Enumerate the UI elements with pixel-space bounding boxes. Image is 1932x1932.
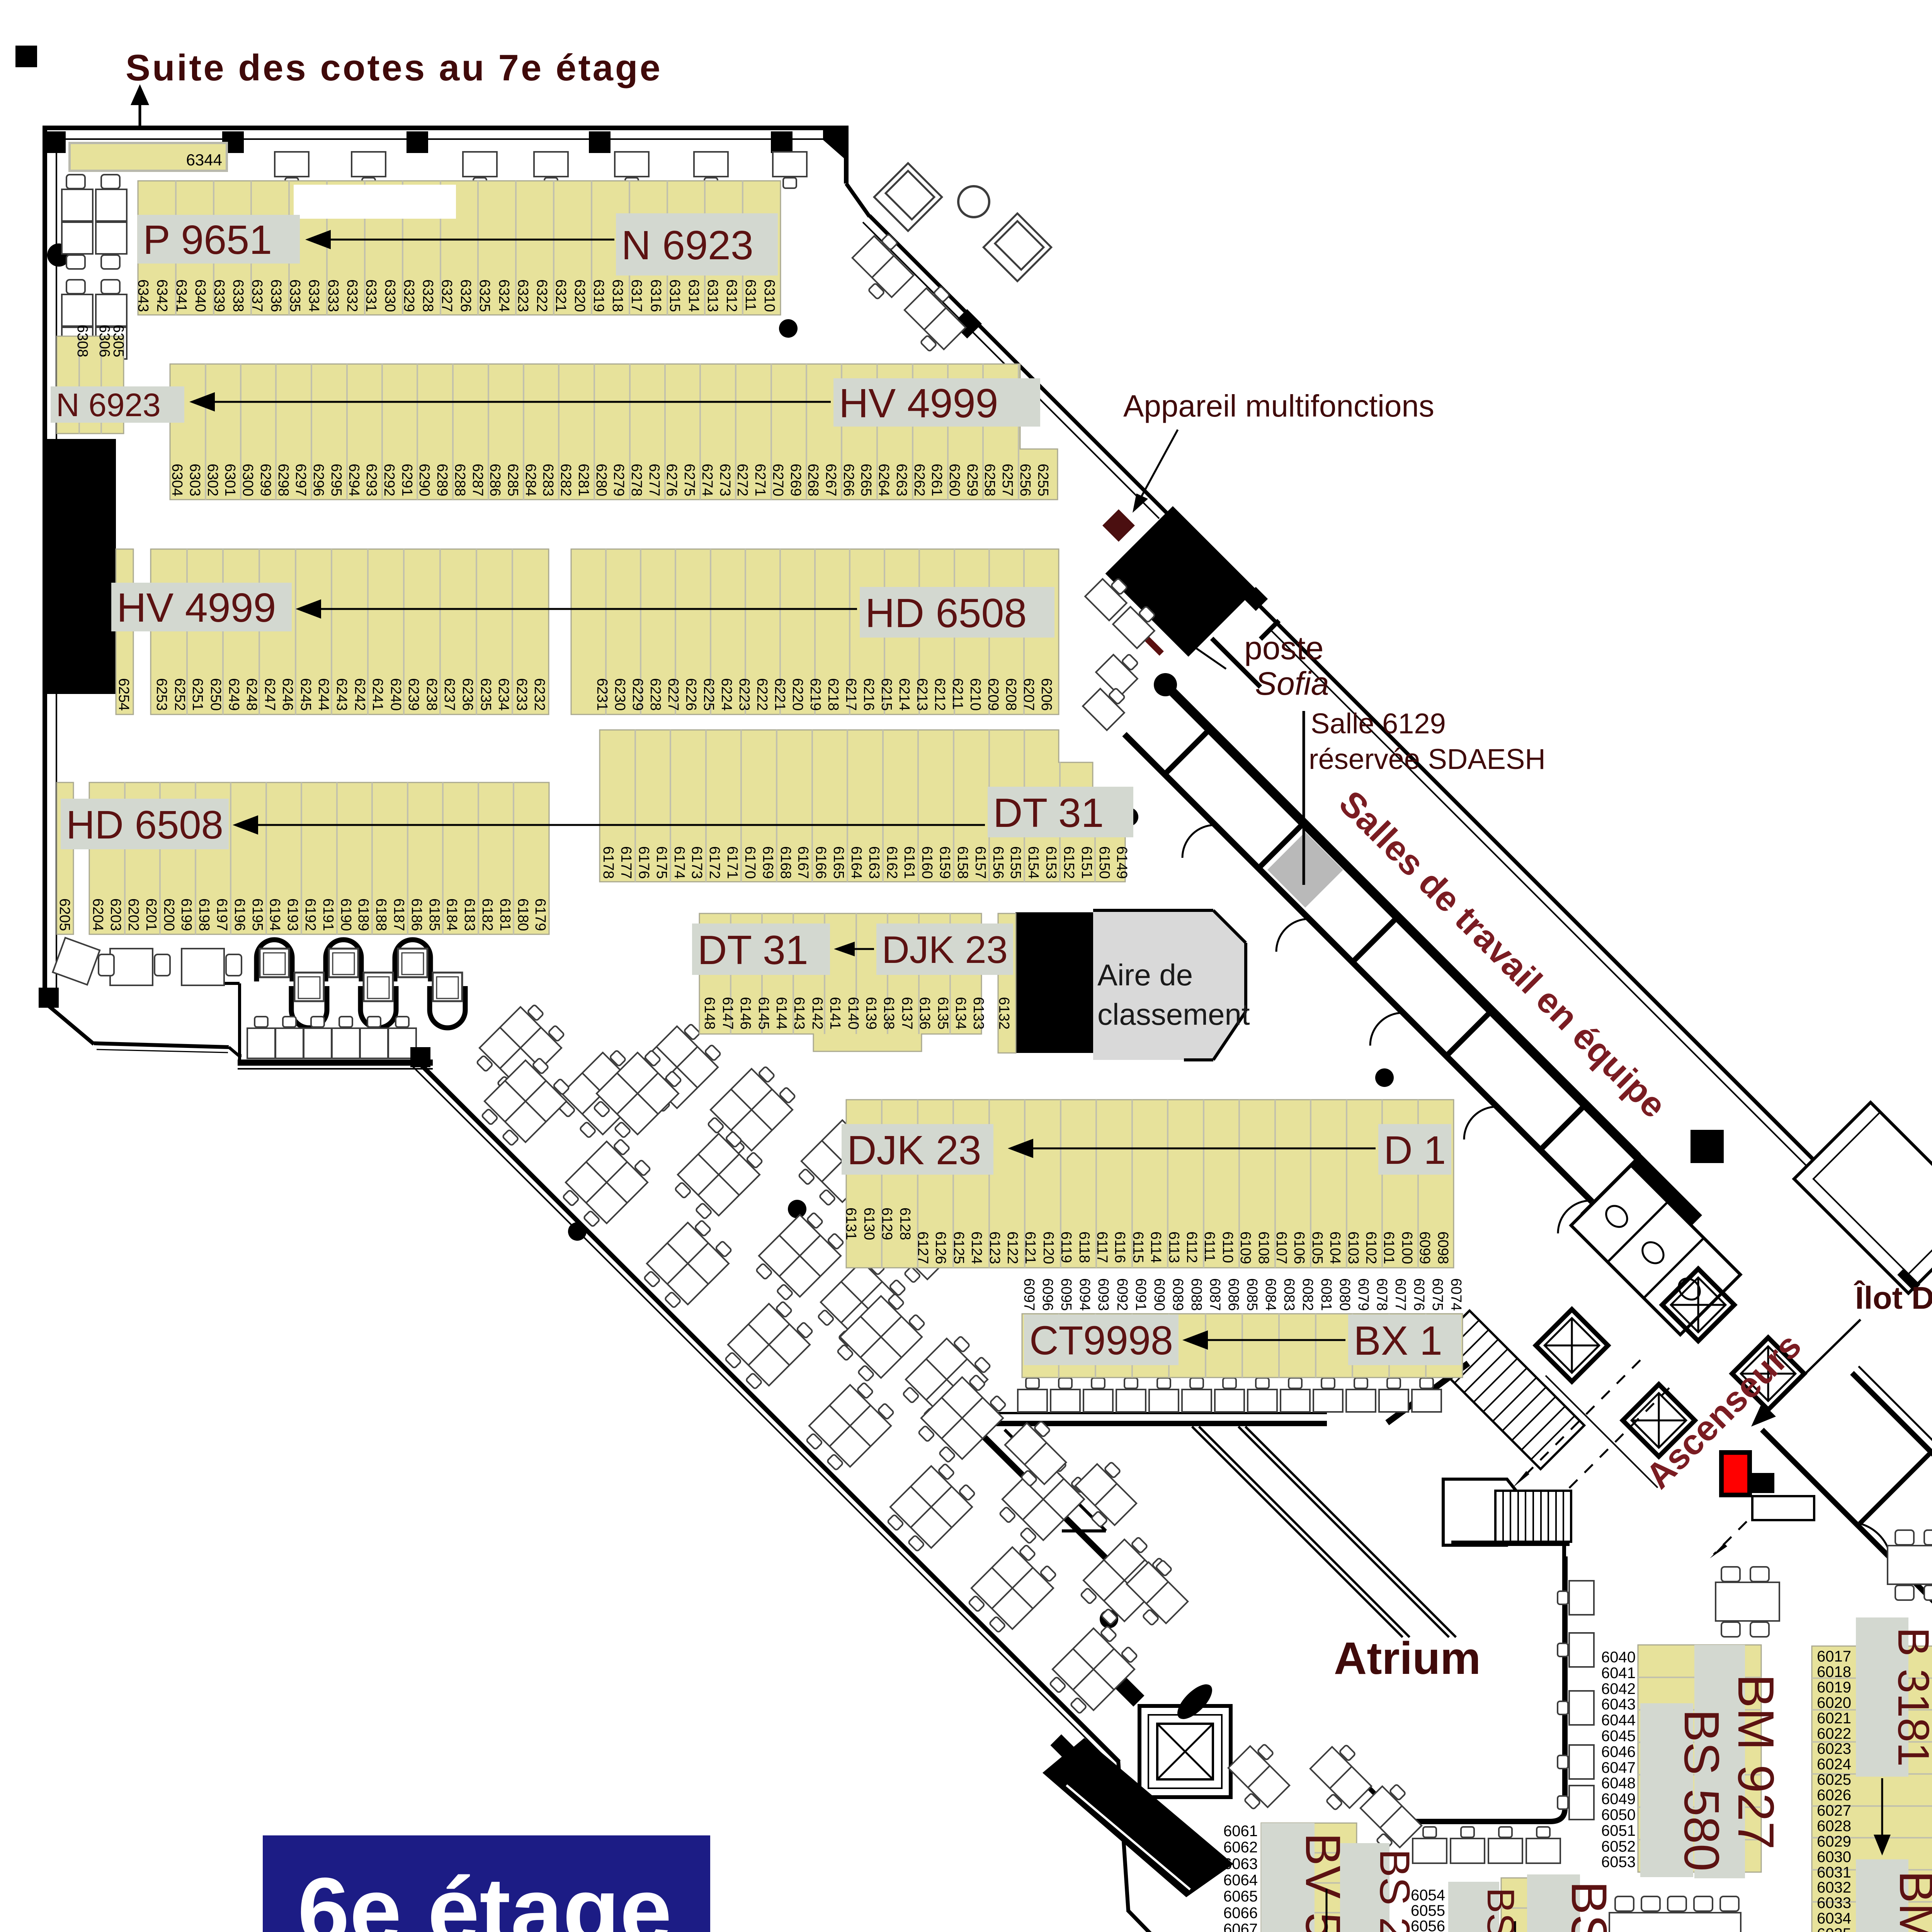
svg-text:HD 6508: HD 6508 [865, 590, 1027, 636]
svg-text:6075: 6075 [1429, 1278, 1446, 1311]
svg-text:6192: 6192 [302, 898, 318, 931]
svg-text:6047: 6047 [1601, 1759, 1636, 1776]
svg-text:6297: 6297 [293, 464, 309, 497]
svg-text:6170: 6170 [742, 846, 758, 879]
svg-text:6299: 6299 [257, 464, 274, 497]
svg-text:6156: 6156 [990, 846, 1006, 879]
svg-text:6243: 6243 [333, 678, 350, 711]
svg-text:6023: 6023 [1817, 1740, 1851, 1757]
svg-text:6055: 6055 [1411, 1902, 1445, 1919]
svg-text:6121: 6121 [1022, 1231, 1038, 1264]
svg-text:6114: 6114 [1148, 1231, 1164, 1263]
svg-text:6312: 6312 [723, 279, 740, 312]
svg-text:6316: 6316 [648, 279, 664, 312]
svg-text:Atrium: Atrium [1334, 1633, 1481, 1684]
svg-text:6026: 6026 [1817, 1787, 1851, 1804]
svg-text:BS 580: BS 580 [1674, 1709, 1729, 1871]
svg-text:6291: 6291 [399, 464, 415, 497]
svg-text:6183: 6183 [461, 898, 478, 931]
svg-text:6197: 6197 [214, 898, 230, 931]
svg-text:6079: 6079 [1355, 1278, 1371, 1311]
svg-text:6232: 6232 [531, 678, 548, 711]
svg-text:6089: 6089 [1170, 1278, 1186, 1311]
svg-text:6201: 6201 [143, 898, 159, 931]
svg-text:6259: 6259 [964, 464, 980, 497]
svg-text:6216: 6216 [861, 678, 877, 711]
svg-text:6296: 6296 [310, 464, 327, 497]
svg-text:6194: 6194 [267, 898, 283, 931]
svg-text:6041: 6041 [1601, 1665, 1636, 1682]
svg-text:6031: 6031 [1817, 1864, 1851, 1881]
svg-text:6262: 6262 [911, 464, 927, 497]
svg-text:6295: 6295 [328, 464, 344, 497]
svg-text:6292: 6292 [381, 464, 397, 497]
svg-text:6106: 6106 [1291, 1231, 1307, 1264]
svg-text:6104: 6104 [1327, 1231, 1343, 1264]
svg-text:6087: 6087 [1207, 1278, 1223, 1311]
svg-text:6120: 6120 [1040, 1231, 1056, 1264]
svg-text:6317: 6317 [628, 279, 645, 312]
svg-text:6255: 6255 [1035, 464, 1051, 497]
svg-text:6145: 6145 [755, 997, 772, 1030]
svg-text:6333: 6333 [325, 279, 341, 312]
svg-text:6338: 6338 [230, 279, 246, 312]
svg-text:6335: 6335 [287, 279, 303, 312]
svg-text:6085: 6085 [1244, 1278, 1260, 1311]
svg-text:6224: 6224 [718, 678, 735, 711]
svg-text:6017: 6017 [1817, 1648, 1851, 1665]
svg-text:6280: 6280 [593, 464, 609, 497]
svg-text:6163: 6163 [866, 846, 882, 879]
svg-text:6062: 6062 [1223, 1839, 1258, 1856]
svg-text:6022: 6022 [1817, 1725, 1851, 1742]
svg-text:6321: 6321 [553, 279, 569, 312]
svg-text:6274: 6274 [699, 464, 715, 497]
svg-text:6252: 6252 [172, 678, 188, 711]
svg-text:6126: 6126 [932, 1231, 949, 1264]
svg-text:poste: poste [1244, 630, 1324, 666]
svg-text:6067: 6067 [1223, 1921, 1258, 1932]
svg-text:6313: 6313 [704, 279, 721, 312]
svg-text:6043: 6043 [1601, 1696, 1636, 1713]
svg-text:6155: 6155 [1007, 846, 1024, 879]
svg-text:6339: 6339 [211, 279, 227, 312]
svg-text:DJK 23: DJK 23 [847, 1128, 981, 1173]
svg-text:6122: 6122 [1004, 1231, 1020, 1264]
svg-text:6191: 6191 [320, 898, 336, 931]
svg-text:6116: 6116 [1112, 1231, 1128, 1263]
svg-text:6113: 6113 [1166, 1231, 1182, 1263]
svg-text:6181: 6181 [497, 898, 513, 931]
svg-text:6315: 6315 [667, 279, 683, 312]
svg-text:6083: 6083 [1281, 1278, 1297, 1311]
svg-text:6214: 6214 [896, 678, 912, 711]
svg-text:6094: 6094 [1077, 1278, 1093, 1311]
svg-text:6134: 6134 [952, 997, 969, 1030]
svg-text:6130: 6130 [861, 1207, 877, 1240]
svg-text:6150: 6150 [1096, 846, 1112, 879]
svg-text:6212: 6212 [932, 678, 948, 711]
svg-text:6110: 6110 [1219, 1231, 1236, 1263]
svg-text:6174: 6174 [671, 846, 687, 879]
svg-text:6290: 6290 [416, 464, 432, 497]
svg-text:6226: 6226 [683, 678, 699, 711]
svg-text:6024: 6024 [1817, 1756, 1851, 1773]
svg-text:6324: 6324 [496, 279, 512, 312]
svg-text:6133: 6133 [970, 997, 986, 1030]
svg-text:6020: 6020 [1817, 1694, 1851, 1711]
svg-text:BS 580: BS 580 [1561, 1881, 1617, 1932]
svg-text:6164: 6164 [848, 846, 864, 879]
svg-text:6246: 6246 [279, 678, 296, 711]
svg-text:6235: 6235 [478, 678, 494, 711]
svg-text:6322: 6322 [534, 279, 550, 312]
svg-text:6091: 6091 [1133, 1278, 1149, 1311]
svg-text:Aire de: Aire de [1097, 958, 1193, 992]
svg-text:6048: 6048 [1601, 1775, 1636, 1792]
svg-text:6040: 6040 [1601, 1649, 1636, 1666]
svg-text:6279: 6279 [611, 464, 627, 497]
svg-text:6207: 6207 [1020, 678, 1037, 711]
svg-text:HV 4999: HV 4999 [117, 585, 276, 631]
svg-text:DJK 23: DJK 23 [882, 929, 1008, 971]
svg-text:6092: 6092 [1114, 1278, 1130, 1311]
svg-text:6160: 6160 [919, 846, 935, 879]
svg-text:6282: 6282 [558, 464, 574, 497]
svg-text:6289: 6289 [434, 464, 450, 497]
svg-text:6166: 6166 [813, 846, 829, 879]
svg-text:6169: 6169 [760, 846, 776, 879]
svg-text:6176: 6176 [636, 846, 652, 879]
svg-text:6305: 6305 [110, 325, 126, 357]
svg-text:6109: 6109 [1237, 1231, 1253, 1264]
svg-text:6258: 6258 [981, 464, 998, 497]
svg-text:6249: 6249 [226, 678, 242, 711]
svg-text:6270: 6270 [770, 464, 786, 497]
svg-text:6027: 6027 [1817, 1802, 1851, 1819]
svg-text:6231: 6231 [594, 678, 610, 711]
svg-text:6135: 6135 [935, 997, 951, 1030]
svg-text:6314: 6314 [685, 279, 702, 312]
svg-text:6044: 6044 [1601, 1712, 1636, 1729]
svg-text:réservée SDAESH: réservée SDAESH [1309, 743, 1546, 775]
svg-text:6298: 6298 [275, 464, 291, 497]
svg-text:6177: 6177 [618, 846, 634, 879]
svg-text:6045: 6045 [1601, 1728, 1636, 1745]
svg-text:6123: 6123 [986, 1231, 1003, 1264]
svg-text:6086: 6086 [1225, 1278, 1242, 1311]
svg-text:CT9998: CT9998 [1029, 1318, 1173, 1363]
svg-text:6304: 6304 [169, 464, 185, 497]
svg-text:BM 920: BM 920 [1889, 1871, 1932, 1932]
svg-text:6146: 6146 [737, 997, 753, 1030]
svg-text:6065: 6065 [1223, 1888, 1258, 1905]
svg-text:6342: 6342 [154, 279, 170, 312]
svg-text:6042: 6042 [1601, 1680, 1636, 1697]
svg-text:6096: 6096 [1039, 1278, 1056, 1311]
svg-text:6188: 6188 [373, 898, 389, 931]
svg-text:6180: 6180 [515, 898, 531, 931]
svg-text:6152: 6152 [1061, 846, 1077, 879]
svg-text:6275: 6275 [681, 464, 697, 497]
svg-text:6336: 6336 [268, 279, 284, 312]
svg-text:6198: 6198 [196, 898, 212, 931]
svg-text:6161: 6161 [901, 846, 917, 879]
svg-text:6311: 6311 [742, 279, 759, 311]
svg-text:6025: 6025 [1817, 1771, 1851, 1788]
svg-text:6230: 6230 [612, 678, 628, 711]
svg-text:6250: 6250 [207, 678, 224, 711]
svg-text:6105: 6105 [1309, 1231, 1325, 1264]
svg-text:B 3181: B 3181 [1889, 1627, 1932, 1767]
svg-text:6033: 6033 [1817, 1895, 1851, 1912]
svg-text:6175: 6175 [653, 846, 670, 879]
svg-text:6049: 6049 [1601, 1791, 1636, 1808]
svg-text:6200: 6200 [161, 898, 177, 931]
svg-text:6153: 6153 [1043, 846, 1059, 879]
svg-text:6139: 6139 [863, 997, 879, 1030]
svg-text:6294: 6294 [346, 464, 362, 497]
svg-text:Suite des cotes au 7e étage: Suite des cotes au 7e étage [126, 47, 662, 88]
svg-text:6034: 6034 [1817, 1910, 1851, 1927]
svg-text:6239: 6239 [405, 678, 422, 711]
svg-text:6131: 6131 [843, 1207, 859, 1240]
svg-text:6340: 6340 [192, 279, 208, 312]
svg-text:6228: 6228 [647, 678, 663, 711]
svg-text:6261: 6261 [929, 464, 945, 497]
svg-text:6184: 6184 [444, 898, 460, 931]
svg-text:6330: 6330 [382, 279, 398, 312]
svg-text:6102: 6102 [1363, 1231, 1379, 1264]
svg-text:6081: 6081 [1318, 1278, 1334, 1311]
svg-text:6178: 6178 [600, 846, 616, 879]
svg-text:N 6923: N 6923 [56, 387, 161, 423]
svg-text:DT 31: DT 31 [697, 927, 808, 973]
svg-text:6318: 6318 [609, 279, 626, 312]
svg-text:6093: 6093 [1095, 1278, 1111, 1311]
svg-text:6263: 6263 [893, 464, 910, 497]
svg-text:6196: 6196 [231, 898, 248, 931]
svg-text:6e étage: 6e étage [298, 1859, 672, 1932]
svg-text:6029: 6029 [1817, 1833, 1851, 1850]
svg-text:6190: 6190 [338, 898, 354, 931]
svg-text:6257: 6257 [999, 464, 1015, 497]
svg-text:6251: 6251 [189, 678, 206, 711]
svg-text:6090: 6090 [1151, 1278, 1167, 1311]
svg-text:6278: 6278 [628, 464, 645, 497]
svg-text:6074: 6074 [1448, 1278, 1464, 1311]
svg-text:6331: 6331 [363, 279, 379, 312]
svg-text:6108: 6108 [1255, 1231, 1272, 1264]
svg-text:6343: 6343 [135, 279, 151, 312]
svg-text:6285: 6285 [505, 464, 521, 497]
svg-text:6223: 6223 [736, 678, 752, 711]
svg-text:6077: 6077 [1392, 1278, 1408, 1311]
svg-text:6128: 6128 [897, 1207, 913, 1240]
svg-text:6056: 6056 [1411, 1918, 1445, 1932]
svg-text:6241: 6241 [369, 678, 386, 711]
svg-text:6254: 6254 [116, 678, 132, 711]
svg-text:6117: 6117 [1094, 1231, 1110, 1263]
svg-text:6195: 6195 [249, 898, 265, 931]
svg-text:6306: 6306 [96, 325, 112, 357]
svg-text:6269: 6269 [787, 464, 804, 497]
svg-text:6213: 6213 [914, 678, 930, 711]
svg-text:6237: 6237 [441, 678, 457, 711]
svg-text:6225: 6225 [701, 678, 717, 711]
svg-text:classement: classement [1097, 997, 1250, 1031]
svg-text:Salle 6129: Salle 6129 [1311, 707, 1446, 740]
svg-text:6032: 6032 [1817, 1879, 1851, 1896]
svg-text:6281: 6281 [575, 464, 592, 497]
svg-text:6303: 6303 [187, 464, 203, 497]
svg-text:6054: 6054 [1411, 1887, 1445, 1904]
svg-text:6332: 6332 [344, 279, 360, 312]
svg-text:6272: 6272 [734, 464, 750, 497]
svg-text:6266: 6266 [840, 464, 857, 497]
svg-text:6341: 6341 [173, 279, 189, 312]
svg-text:6284: 6284 [522, 464, 539, 497]
svg-text:6019: 6019 [1817, 1679, 1851, 1696]
svg-text:6167: 6167 [795, 846, 811, 879]
svg-text:6080: 6080 [1337, 1278, 1353, 1311]
svg-text:6050: 6050 [1601, 1806, 1636, 1823]
svg-text:6173: 6173 [689, 846, 705, 879]
svg-text:6199: 6199 [178, 898, 194, 931]
svg-text:6337: 6337 [249, 279, 265, 312]
svg-text:DT 31: DT 31 [993, 790, 1104, 836]
svg-text:6265: 6265 [858, 464, 874, 497]
svg-text:6107: 6107 [1273, 1231, 1289, 1264]
svg-text:6193: 6193 [284, 898, 301, 931]
svg-text:6053: 6053 [1601, 1854, 1636, 1871]
svg-text:6209: 6209 [985, 678, 1001, 711]
svg-text:6260: 6260 [946, 464, 963, 497]
svg-text:BM 927: BM 927 [1728, 1674, 1784, 1850]
svg-text:6268: 6268 [805, 464, 821, 497]
svg-text:6217: 6217 [843, 678, 859, 711]
svg-text:6035: 6035 [1817, 1925, 1851, 1932]
svg-text:6327: 6327 [439, 279, 455, 312]
svg-text:6046: 6046 [1601, 1743, 1636, 1760]
svg-text:Appareil multifonctions: Appareil multifonctions [1123, 389, 1434, 423]
svg-text:D 1: D 1 [1384, 1128, 1446, 1172]
svg-text:6088: 6088 [1188, 1278, 1204, 1311]
svg-text:6165: 6165 [830, 846, 847, 879]
svg-text:6264: 6264 [876, 464, 892, 497]
svg-text:6218: 6218 [825, 678, 841, 711]
svg-text:6328: 6328 [420, 279, 436, 312]
svg-text:6253: 6253 [153, 678, 170, 711]
svg-text:6138: 6138 [881, 997, 897, 1030]
svg-text:6018: 6018 [1817, 1663, 1851, 1680]
svg-text:6301: 6301 [222, 464, 238, 497]
svg-text:6271: 6271 [752, 464, 768, 497]
svg-text:6310: 6310 [761, 279, 777, 312]
svg-text:6124: 6124 [968, 1231, 985, 1264]
svg-text:N 6923: N 6923 [621, 223, 753, 268]
svg-text:6344: 6344 [186, 151, 222, 169]
svg-text:6286: 6286 [487, 464, 503, 497]
svg-text:6061: 6061 [1223, 1823, 1258, 1840]
svg-text:6240: 6240 [388, 678, 404, 711]
svg-text:6112: 6112 [1184, 1231, 1200, 1263]
svg-text:6221: 6221 [772, 678, 788, 711]
svg-text:6064: 6064 [1223, 1872, 1258, 1889]
svg-text:6115: 6115 [1130, 1231, 1146, 1263]
svg-text:6238: 6238 [423, 678, 440, 711]
svg-text:6185: 6185 [426, 898, 442, 931]
svg-text:6248: 6248 [243, 678, 260, 711]
svg-text:6211: 6211 [949, 678, 966, 710]
svg-text:6100: 6100 [1399, 1231, 1415, 1264]
svg-text:6140: 6140 [845, 997, 861, 1030]
svg-text:6051: 6051 [1601, 1822, 1636, 1839]
svg-text:6168: 6168 [777, 846, 794, 879]
svg-text:6171: 6171 [724, 846, 740, 879]
svg-text:6111: 6111 [1201, 1231, 1218, 1262]
svg-text:6030: 6030 [1817, 1849, 1851, 1866]
svg-text:6076: 6076 [1411, 1278, 1427, 1311]
svg-text:6063: 6063 [1223, 1855, 1258, 1872]
svg-text:6215: 6215 [878, 678, 895, 711]
svg-text:6202: 6202 [125, 898, 141, 931]
svg-text:6148: 6148 [701, 997, 718, 1030]
svg-text:6095: 6095 [1058, 1278, 1074, 1311]
svg-text:6302: 6302 [204, 464, 221, 497]
svg-text:6273: 6273 [717, 464, 733, 497]
svg-text:6205: 6205 [56, 898, 73, 931]
svg-text:6293: 6293 [363, 464, 379, 497]
svg-text:6329: 6329 [401, 279, 417, 312]
svg-text:6276: 6276 [663, 464, 680, 497]
svg-text:6320: 6320 [571, 279, 588, 312]
svg-text:6219: 6219 [807, 678, 823, 711]
svg-text:6189: 6189 [355, 898, 371, 931]
svg-text:6256: 6256 [1017, 464, 1033, 497]
svg-text:6066: 6066 [1223, 1905, 1258, 1922]
svg-text:Sofia: Sofia [1255, 665, 1329, 702]
svg-text:6236: 6236 [459, 678, 476, 711]
svg-text:6132: 6132 [996, 997, 1012, 1030]
svg-text:6143: 6143 [791, 997, 807, 1030]
svg-text:6247: 6247 [262, 678, 278, 711]
svg-text:6227: 6227 [665, 678, 681, 711]
svg-text:6323: 6323 [515, 279, 531, 312]
svg-text:6154: 6154 [1025, 846, 1041, 879]
svg-text:6287: 6287 [469, 464, 486, 497]
svg-text:6129: 6129 [879, 1207, 895, 1240]
svg-text:6325: 6325 [476, 279, 493, 312]
svg-text:6283: 6283 [540, 464, 556, 497]
svg-text:6326: 6326 [457, 279, 474, 312]
svg-text:6127: 6127 [915, 1231, 931, 1264]
svg-text:6179: 6179 [532, 898, 548, 931]
svg-text:6142: 6142 [809, 997, 825, 1030]
svg-text:6158: 6158 [954, 846, 971, 879]
svg-text:6151: 6151 [1078, 846, 1095, 879]
svg-text:6021: 6021 [1817, 1710, 1851, 1727]
svg-text:6222: 6222 [754, 678, 770, 711]
svg-text:HD 6508: HD 6508 [66, 803, 223, 847]
svg-text:6229: 6229 [629, 678, 646, 711]
svg-text:6234: 6234 [495, 678, 512, 711]
svg-text:6204: 6204 [90, 898, 106, 931]
svg-text:6288: 6288 [452, 464, 468, 497]
svg-text:6084: 6084 [1262, 1278, 1279, 1311]
svg-text:6319: 6319 [590, 279, 607, 312]
svg-text:6119: 6119 [1058, 1231, 1074, 1263]
